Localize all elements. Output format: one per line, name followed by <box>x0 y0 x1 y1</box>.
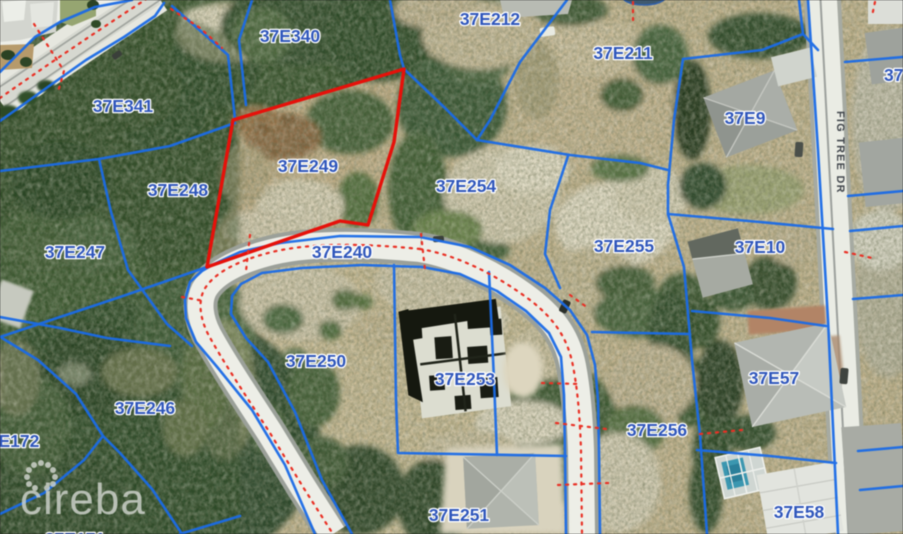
svg-text:cireba: cireba <box>20 475 146 524</box>
svg-text:37E254: 37E254 <box>436 176 497 196</box>
svg-text:37E246: 37E246 <box>115 398 176 418</box>
svg-text:37E250: 37E250 <box>286 351 347 371</box>
svg-text:37E253: 37E253 <box>435 369 496 389</box>
svg-text:37E340: 37E340 <box>260 26 321 46</box>
svg-text:37E10: 37E10 <box>735 237 786 257</box>
svg-text:37E256: 37E256 <box>627 420 688 440</box>
svg-text:37E9: 37E9 <box>725 108 766 128</box>
svg-text:37E171: 37E171 <box>45 529 106 534</box>
svg-text:37E58: 37E58 <box>774 502 825 522</box>
svg-text:37E: 37E <box>884 65 903 85</box>
svg-text:37E211: 37E211 <box>593 43 653 63</box>
svg-text:37E249: 37E249 <box>278 156 339 176</box>
svg-text:37E57: 37E57 <box>749 368 800 388</box>
svg-text:37E247: 37E247 <box>45 242 105 262</box>
svg-text:37E212: 37E212 <box>460 9 521 29</box>
svg-text:37E251: 37E251 <box>429 505 490 525</box>
svg-text:37E240: 37E240 <box>312 242 373 262</box>
svg-text:37E341: 37E341 <box>93 96 154 116</box>
svg-text:37E255: 37E255 <box>594 236 655 256</box>
svg-text:37E248: 37E248 <box>148 180 209 200</box>
svg-text:37E172: 37E172 <box>0 431 40 451</box>
svg-text:FIG TREE DR: FIG TREE DR <box>834 111 846 194</box>
